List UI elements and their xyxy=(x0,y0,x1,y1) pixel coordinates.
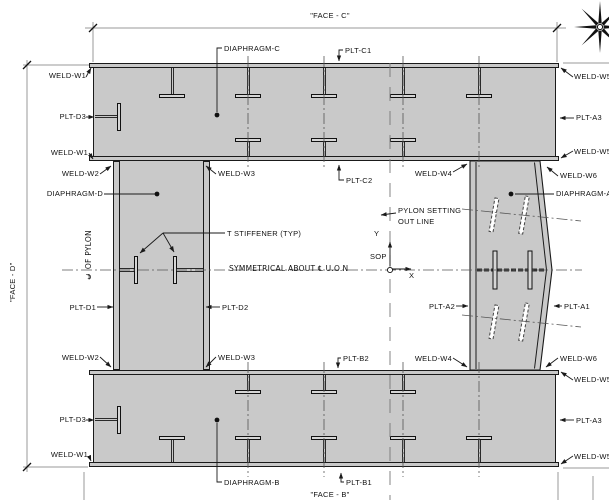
label-weld-w1-mid: WELD-W1 xyxy=(27,148,88,157)
label-diaphragm-a: DIAPHRAGM-A xyxy=(556,189,609,198)
label-weld-w3-bottom: WELD-W3 xyxy=(218,353,255,362)
label-cl-of-pylon: ℄ OF PYLON xyxy=(84,206,93,281)
label-plt-d3-top: PLT-D3 xyxy=(25,112,86,121)
sop-origin-marker xyxy=(387,242,411,273)
label-weld-w2-bottom: WELD-W2 xyxy=(38,353,99,362)
face-d-title: "FACE - D" xyxy=(8,222,17,302)
label-plt-c2: PLT-C2 xyxy=(346,176,372,185)
compass-rose-icon xyxy=(574,1,609,53)
pylon-setting-line1: PYLON SETTING xyxy=(398,206,461,215)
label-t-stiffener: T STIFFENER (TYP) xyxy=(227,229,301,238)
label-diaphragm-d: DIAPHRAGM-D xyxy=(40,189,103,198)
label-plt-c1: PLT-C1 xyxy=(345,46,371,55)
label-weld-w5-top1: WELD-W5 xyxy=(574,72,609,81)
label-sop: SOP xyxy=(370,252,387,261)
pylon-setting-line2: OUT LINE xyxy=(398,217,434,226)
label-weld-w5-bottom2: WELD-W5 xyxy=(574,452,609,461)
label-diaphragm-b: DIAPHRAGM-B xyxy=(224,478,280,487)
label-weld-w1-top: WELD-W1 xyxy=(25,71,86,80)
label-plt-b2: PLT-B2 xyxy=(343,354,369,363)
label-weld-w4-bottom: WELD-W4 xyxy=(406,354,452,363)
label-axis-x: X xyxy=(409,271,414,280)
label-weld-w3-top: WELD-W3 xyxy=(218,169,255,178)
label-weld-w6-bottom: WELD-W6 xyxy=(560,354,597,363)
label-axis-y: Y xyxy=(374,229,379,238)
face-c-title: "FACE - C" xyxy=(275,11,385,20)
label-plt-a3-bottom: PLT-A3 xyxy=(576,416,602,425)
label-plt-a3-top: PLT-A3 xyxy=(576,113,602,122)
label-diaphragm-c: DIAPHRAGM-C xyxy=(224,44,280,53)
label-plt-a1: PLT-A1 xyxy=(564,302,590,311)
label-weld-w5-bottom1: WELD-W5 xyxy=(574,375,609,384)
label-weld-w2-top: WELD-W2 xyxy=(38,169,99,178)
label-symmetry-note: SYMMETRICAL ABOUT ℄ U.O.N xyxy=(229,264,348,273)
label-weld-w5-top2: WELD-W5 xyxy=(574,147,609,156)
label-weld-w1-bottom: WELD-W1 xyxy=(27,450,88,459)
pylon-section-drawing: "FACE - C" "FACE - D" "FACE - B" WELD-W1… xyxy=(0,0,609,500)
label-pylon-setting-out-line: PYLON SETTING OUT LINE xyxy=(398,205,461,227)
label-plt-d1: PLT-D1 xyxy=(35,303,96,312)
label-plt-d2: PLT-D2 xyxy=(222,303,248,312)
label-weld-w4-top: WELD-W4 xyxy=(406,169,452,178)
label-plt-a2: PLT-A2 xyxy=(417,302,455,311)
label-plt-b1: PLT-B1 xyxy=(346,478,372,487)
face-b-title: "FACE - B" xyxy=(275,490,385,499)
label-plt-d3-bottom: PLT-D3 xyxy=(25,415,86,424)
label-weld-w6-top: WELD-W6 xyxy=(560,171,597,180)
